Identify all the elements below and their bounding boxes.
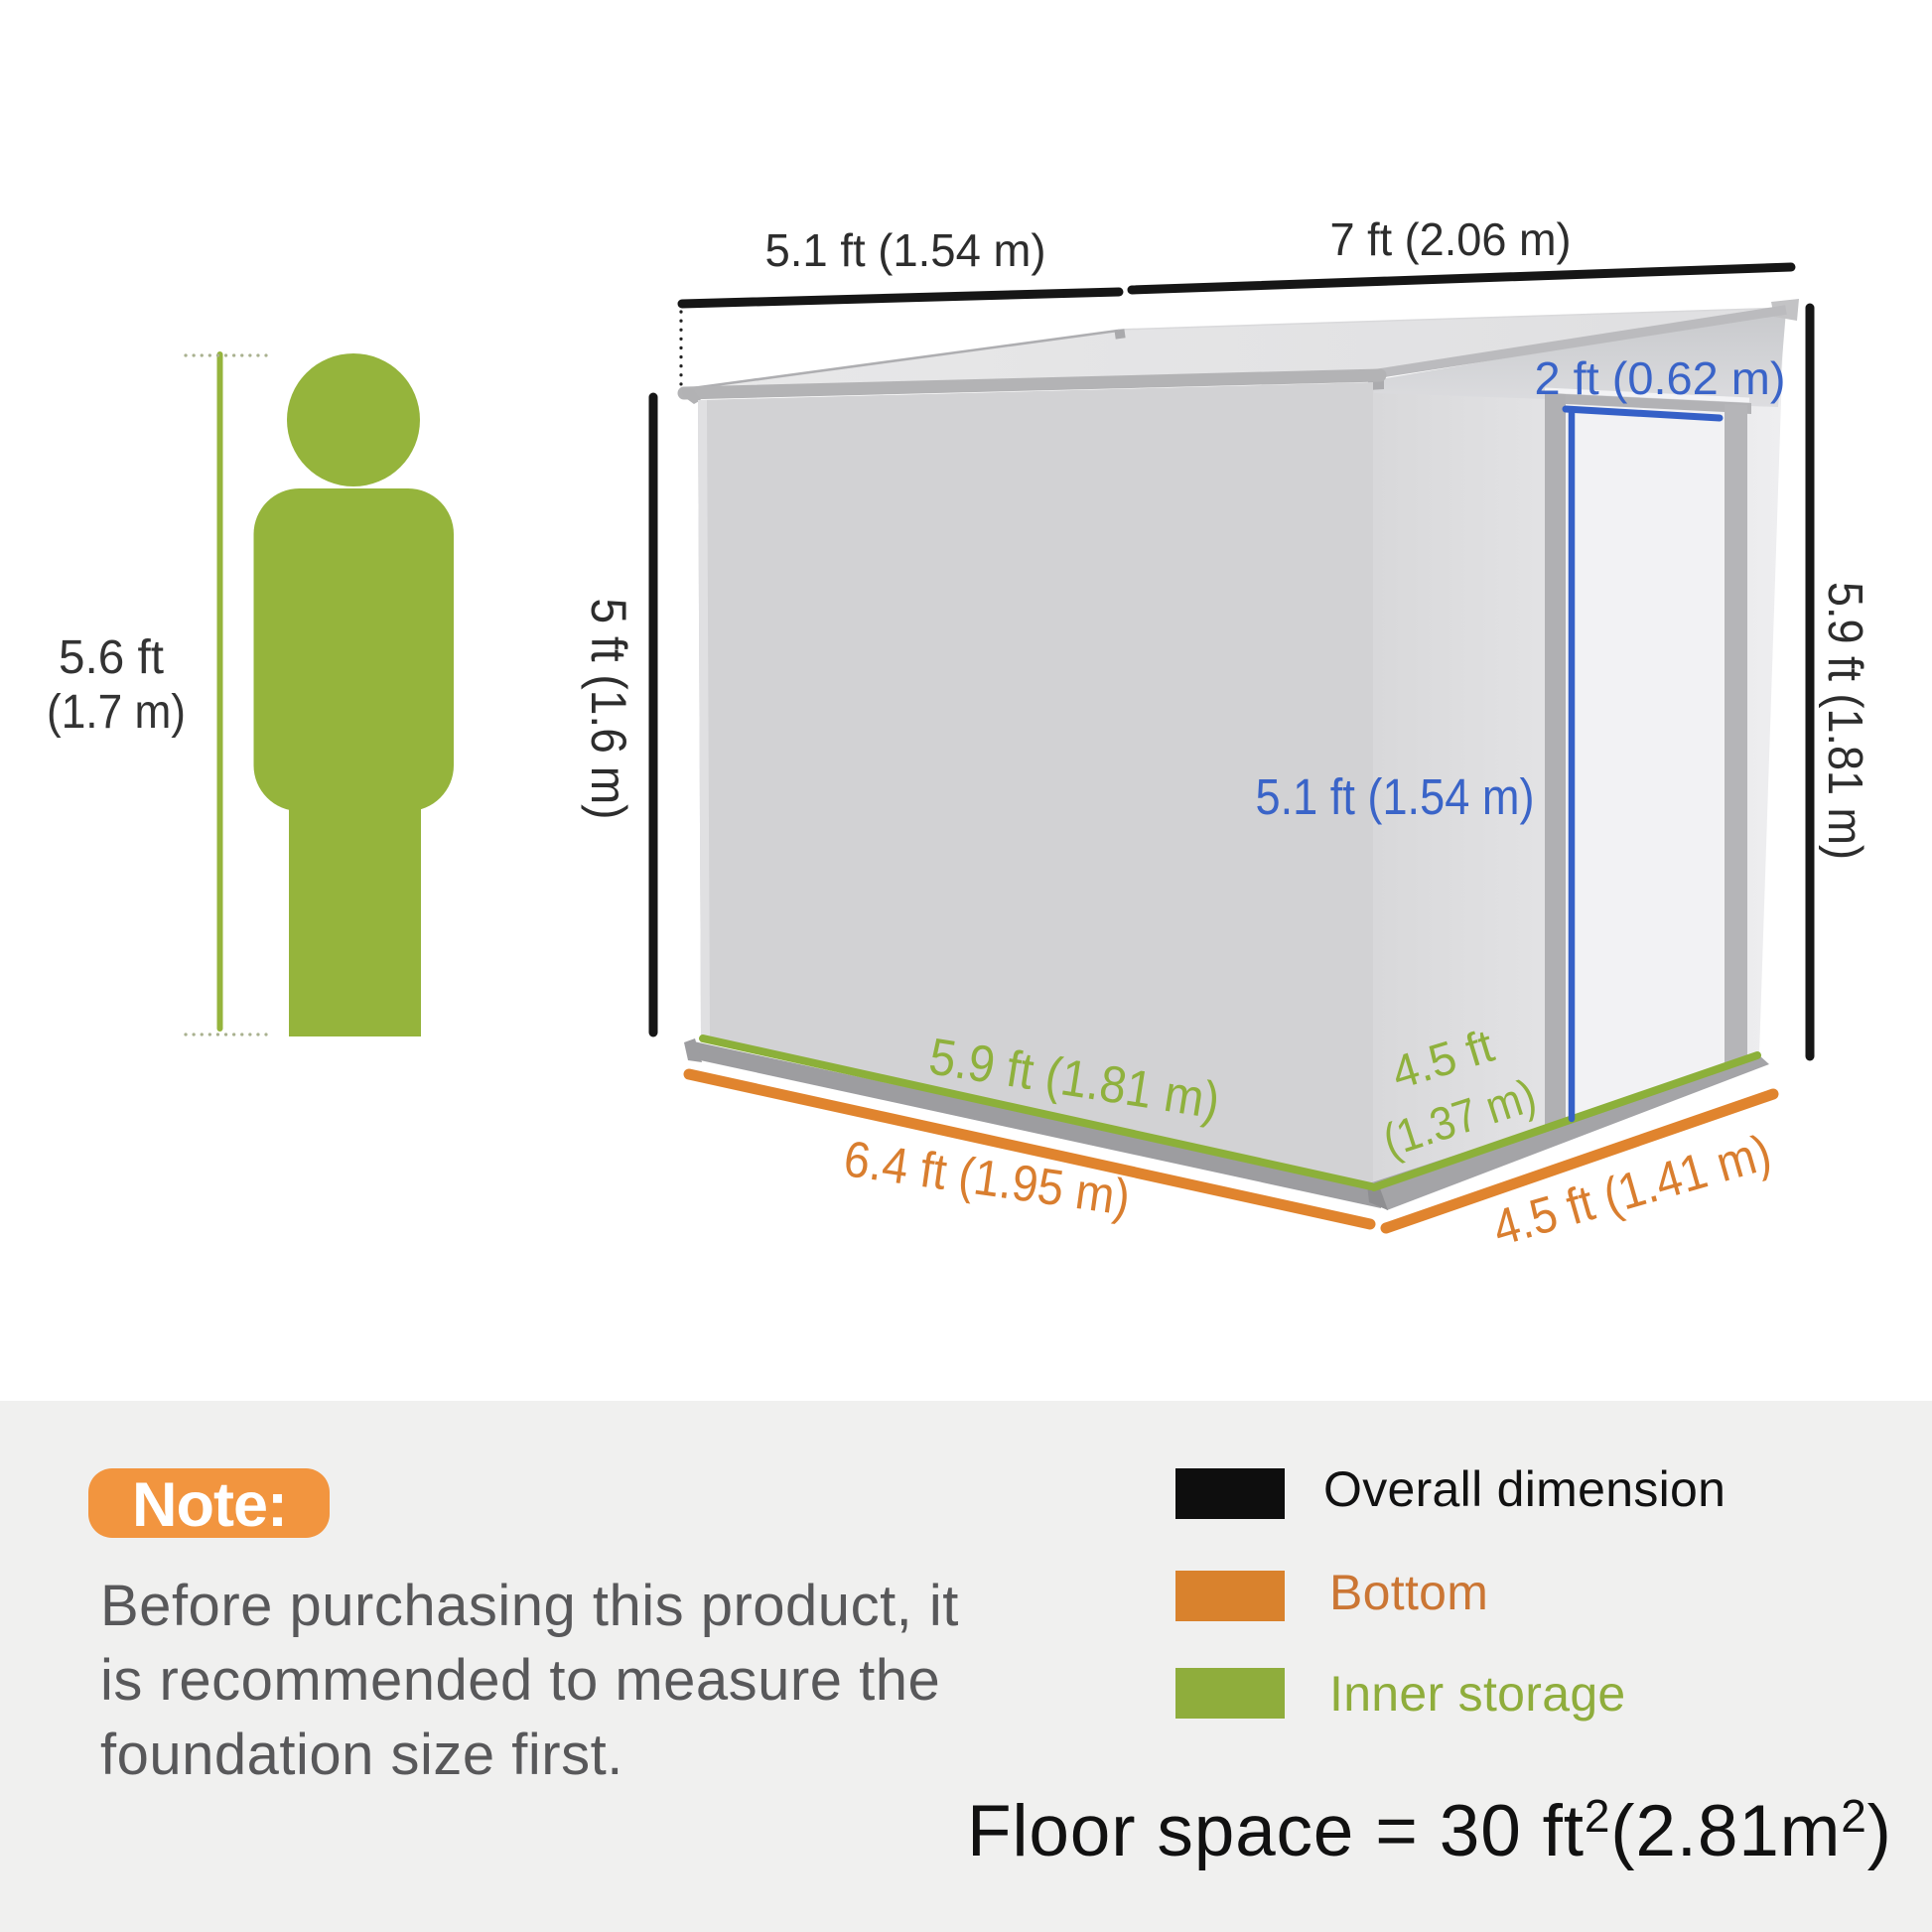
svg-text:2 ft (0.62 m): 2 ft (0.62 m)	[1535, 352, 1786, 404]
svg-text:Overall dimension: Overall dimension	[1323, 1461, 1725, 1517]
svg-text:Floor space = 30 ft2(2.81m2): Floor space = 30 ft2(2.81m2)	[967, 1790, 1892, 1871]
svg-text:5 ft (1.6 m): 5 ft (1.6 m)	[581, 599, 636, 820]
svg-text:5.9 ft (1.81 m): 5.9 ft (1.81 m)	[1818, 582, 1871, 860]
svg-text:Bottom: Bottom	[1329, 1565, 1488, 1620]
svg-text:7 ft (2.06 m): 7 ft (2.06 m)	[1330, 213, 1572, 265]
svg-text:is recommended to measure the: is recommended to measure the	[100, 1648, 940, 1713]
svg-text:5.6 ft: 5.6 ft	[59, 631, 164, 684]
svg-text:Note:: Note:	[132, 1470, 287, 1540]
svg-text:foundation size first.: foundation size first.	[100, 1723, 623, 1787]
svg-text:Before purchasing this product: Before purchasing this product, it	[100, 1574, 959, 1638]
svg-text:5.1 ft (1.54 m): 5.1 ft (1.54 m)	[765, 224, 1046, 276]
svg-text:Inner storage: Inner storage	[1329, 1666, 1626, 1722]
svg-text:(1.7 m): (1.7 m)	[47, 686, 186, 739]
svg-text:5.1 ft (1.54 m): 5.1 ft (1.54 m)	[1256, 768, 1535, 825]
